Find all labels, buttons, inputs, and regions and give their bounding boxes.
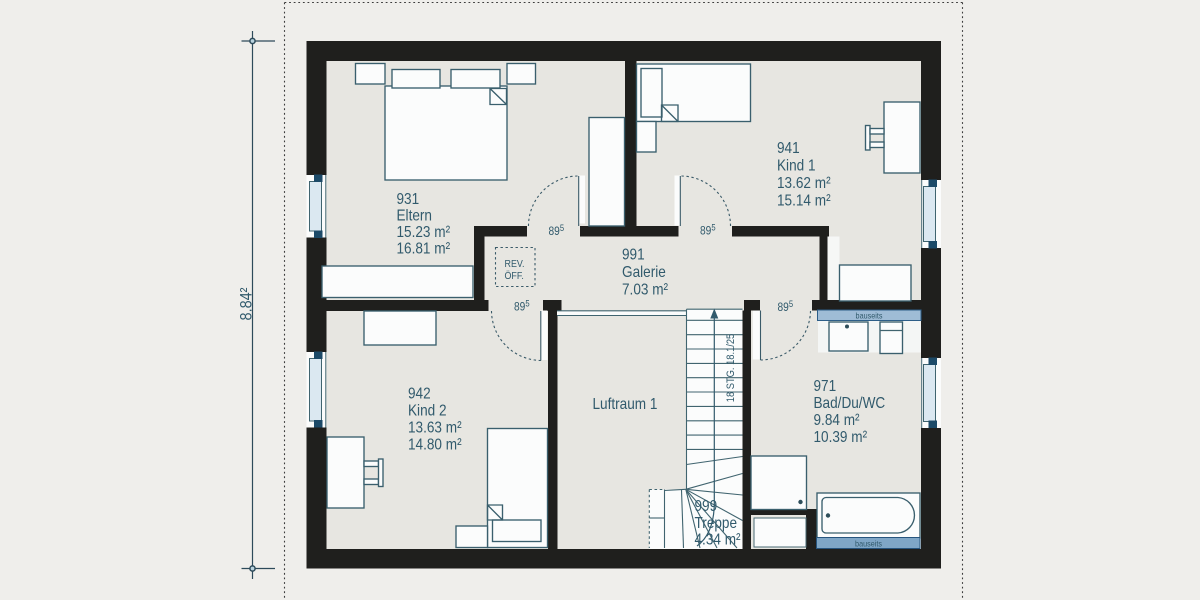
- svg-text:Bad/Du/WC: Bad/Du/WC: [814, 395, 886, 412]
- svg-text:13.62 m²: 13.62 m²: [777, 175, 831, 192]
- svg-text:8.84²: 8.84²: [237, 288, 255, 321]
- svg-text:991: 991: [622, 247, 645, 264]
- svg-text:15.14 m²: 15.14 m²: [777, 193, 831, 210]
- svg-text:ÖFF.: ÖFF.: [505, 270, 524, 282]
- svg-text:13.63 m²: 13.63 m²: [408, 420, 462, 437]
- svg-text:REV.: REV.: [505, 258, 525, 270]
- svg-text:bauseits: bauseits: [855, 539, 882, 549]
- svg-text:bauseits: bauseits: [856, 311, 883, 321]
- svg-text:941: 941: [777, 140, 800, 157]
- svg-text:16.81 m²: 16.81 m²: [397, 241, 451, 258]
- svg-text:Kind 2: Kind 2: [408, 403, 447, 420]
- svg-text:14.80 m²: 14.80 m²: [408, 437, 462, 454]
- svg-text:942: 942: [408, 386, 431, 403]
- svg-text:15.23 m²: 15.23 m²: [397, 224, 451, 241]
- svg-text:971: 971: [814, 378, 837, 395]
- svg-text:Treppe: Treppe: [695, 515, 738, 532]
- svg-text:18 STG. 18.1/25: 18 STG. 18.1/25: [725, 333, 737, 402]
- svg-text:9.84 m²: 9.84 m²: [814, 412, 860, 429]
- svg-text:Kind 1: Kind 1: [777, 158, 816, 175]
- svg-text:Galerie: Galerie: [622, 264, 666, 281]
- svg-text:999: 999: [695, 498, 718, 515]
- svg-text:Luftraum 1: Luftraum 1: [593, 396, 658, 413]
- svg-text:4.34 m²: 4.34 m²: [695, 532, 741, 549]
- svg-text:10.39 m²: 10.39 m²: [814, 429, 868, 446]
- svg-text:931: 931: [397, 191, 420, 208]
- svg-text:Eltern: Eltern: [397, 208, 432, 225]
- svg-text:7.03 m²: 7.03 m²: [622, 282, 668, 299]
